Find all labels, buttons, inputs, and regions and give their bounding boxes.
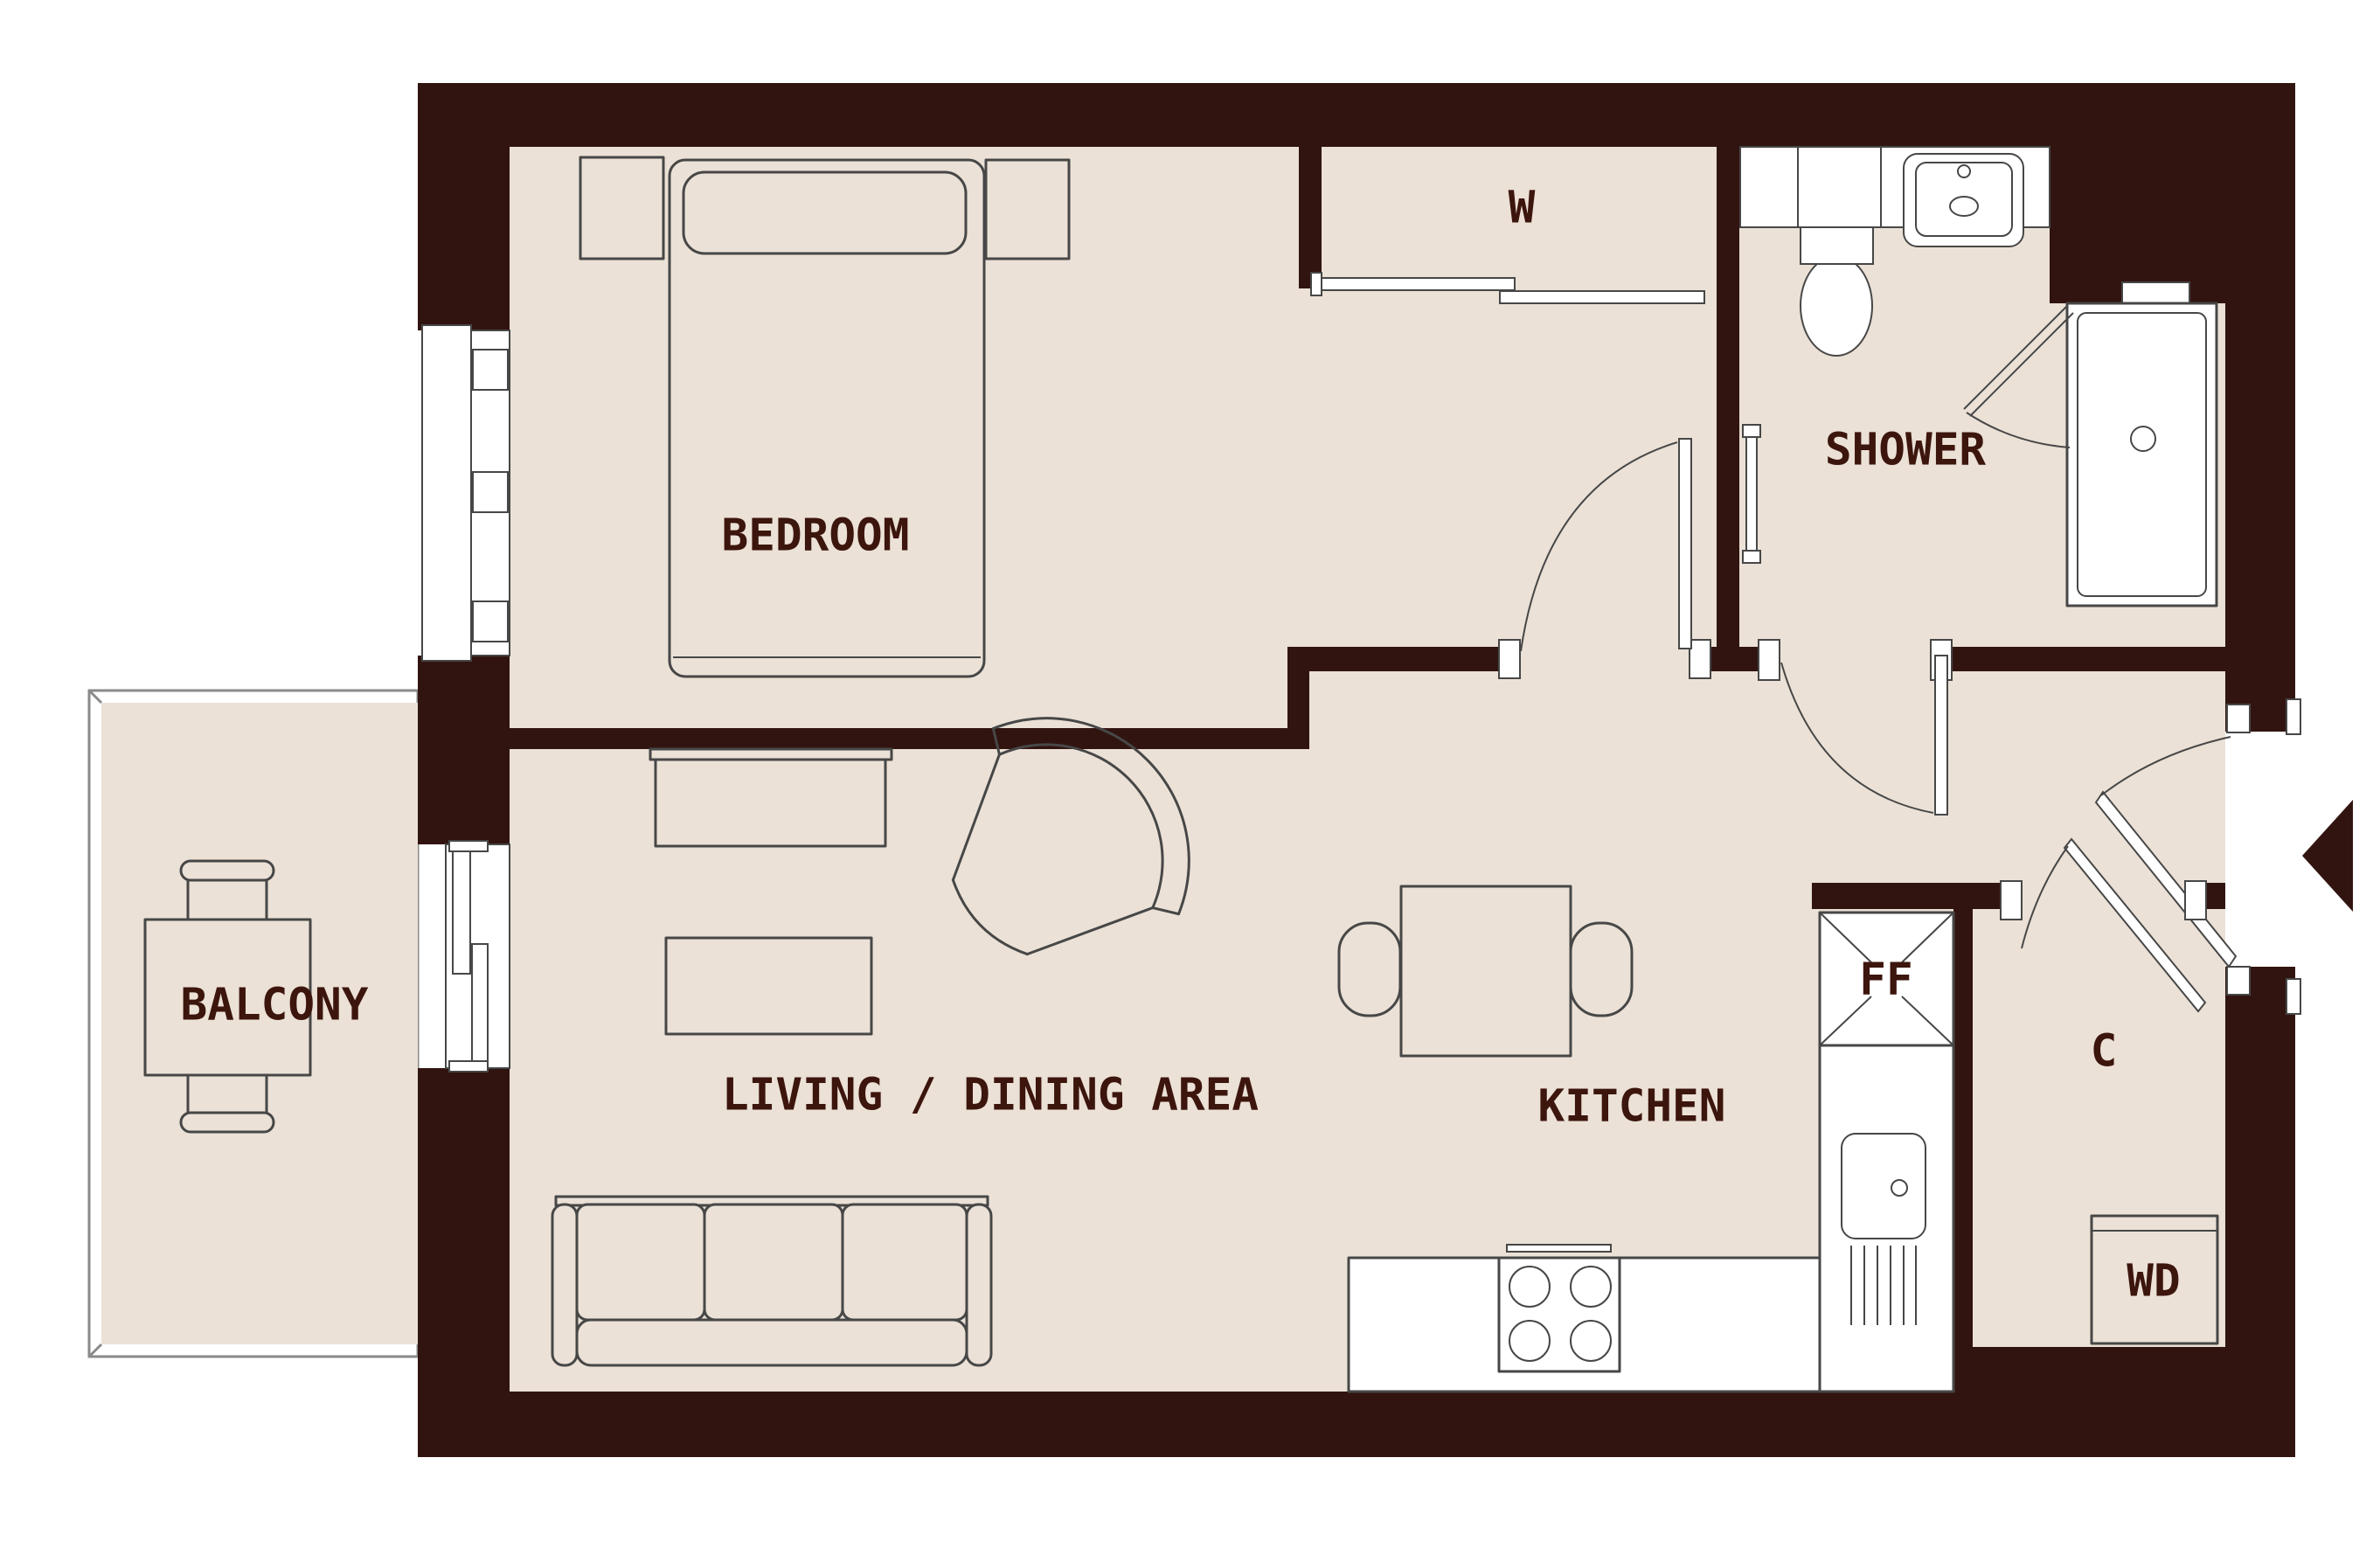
toilet <box>1801 227 1873 356</box>
floorplan-page: BEDROOM SHOWER BALCONY LIVING / DINING A… <box>0 0 2380 1541</box>
wall-bedroom-step <box>1287 671 1309 749</box>
window-tick <box>473 601 508 642</box>
nightstand-right <box>986 160 1069 259</box>
balcony-bench-back <box>181 861 274 880</box>
entrance-arrow-icon <box>2302 800 2353 912</box>
slider-pane-2 <box>472 944 488 1065</box>
room-label-shower: SHOWER <box>1825 425 1987 476</box>
sofa-cushion <box>577 1204 704 1320</box>
shower-head <box>2122 282 2189 303</box>
slider-cap <box>449 841 488 851</box>
balcony-bench-back <box>181 1113 274 1132</box>
towel-radiator <box>1743 425 1760 563</box>
window-tick <box>473 472 508 512</box>
wall-hall-right <box>1941 647 2225 671</box>
wall-right-upper <box>2225 83 2295 732</box>
wall-cupboard-top-left <box>1812 883 2022 909</box>
balcony-bench-seat <box>188 1075 267 1114</box>
balcony-sliding-door <box>446 841 510 1072</box>
wall-kitchen-cupboard <box>1953 909 1973 1392</box>
dining-table <box>1401 886 1571 1056</box>
nightstand-left <box>580 157 663 259</box>
balcony-bench-seat <box>188 880 267 920</box>
label-fridge-freezer: FF <box>1859 954 1912 1006</box>
bed-pillow <box>683 172 966 253</box>
dining-chair-right <box>1571 923 1632 1016</box>
hob <box>1499 1258 1620 1371</box>
wall-bottom <box>418 1392 2295 1457</box>
sofa-cushion <box>704 1204 843 1320</box>
wall-top <box>418 83 2295 147</box>
sofa <box>552 1197 991 1365</box>
window-sill <box>422 325 471 661</box>
dining-chair-left <box>1339 923 1400 1016</box>
sofa-armrest-left <box>552 1204 577 1365</box>
label-wardrobe: W <box>1509 183 1536 234</box>
sofa-cushion <box>843 1204 967 1320</box>
room-label-living-dining: LIVING / DINING AREA <box>722 1070 1259 1121</box>
sofa-seat <box>577 1320 967 1365</box>
basin-sink <box>1904 154 2023 246</box>
wall-left-upper <box>418 83 510 330</box>
tv-unit-back <box>650 749 892 760</box>
slider-cap <box>449 1061 488 1072</box>
sliding-door-track-2 <box>1500 291 1704 303</box>
window-tick <box>473 350 508 390</box>
bedroom-window <box>422 325 510 661</box>
sofa-armrest-right <box>967 1204 991 1365</box>
label-cupboard: C <box>2091 1026 2118 1078</box>
room-label-kitchen: KITCHEN <box>1538 1081 1726 1133</box>
wall-bedroom-bottom-right <box>1287 647 1519 671</box>
coffee-table <box>666 938 871 1034</box>
tv-unit <box>656 760 885 846</box>
wall-left-mid <box>418 656 510 844</box>
wall-bedroom-bottom-left <box>510 728 1287 749</box>
wall-bottom-right-step <box>1955 1347 2295 1395</box>
label-washer-dryer: WD <box>2127 1256 2180 1308</box>
slider-cap <box>1311 273 1322 295</box>
sliding-door-track-1 <box>1322 278 1515 290</box>
floorplan-canvas: BEDROOM SHOWER BALCONY LIVING / DINING A… <box>0 0 2380 1541</box>
room-label-balcony: BALCONY <box>181 980 369 1031</box>
slider-pane-1 <box>453 851 470 974</box>
wall-wardrobe-shower <box>1717 147 1739 647</box>
room-label-bedroom: BEDROOM <box>722 510 910 562</box>
hob-splashback <box>1507 1245 1611 1252</box>
wall-wardrobe-left <box>1299 147 1322 288</box>
